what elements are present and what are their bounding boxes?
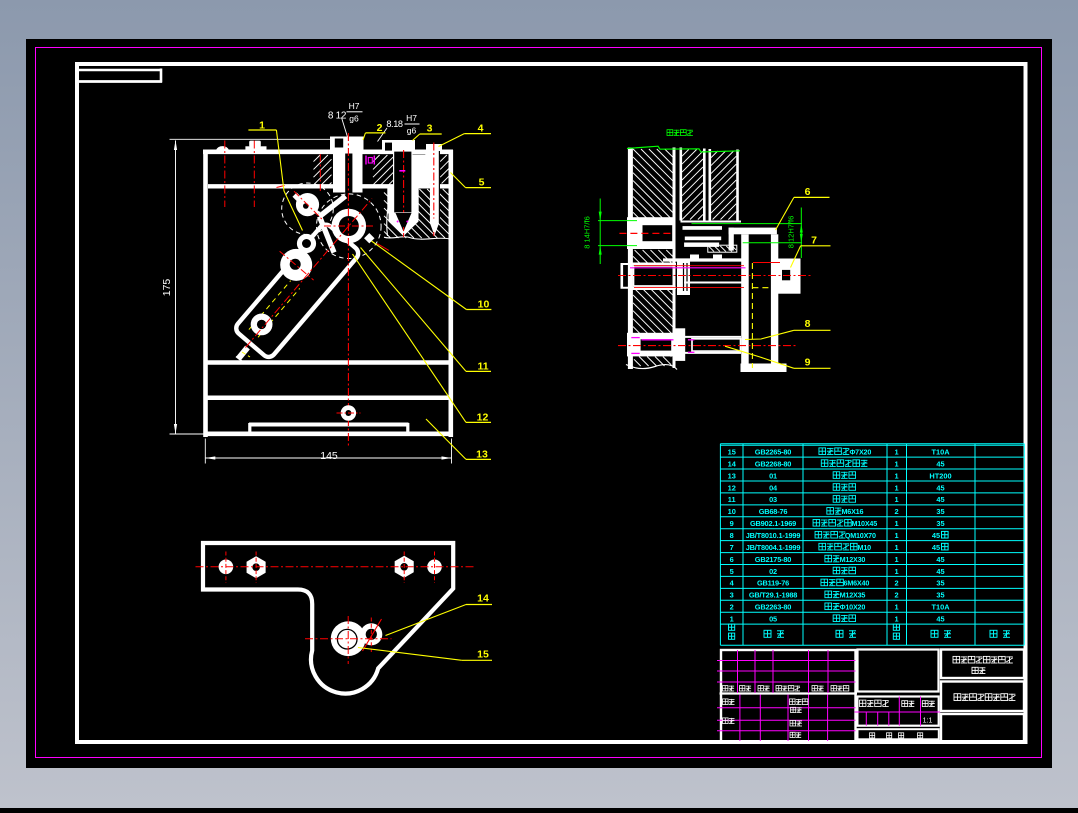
svg-text:2: 2 <box>895 579 899 588</box>
svg-text:GB68-76: GB68-76 <box>759 507 788 516</box>
svg-text:1: 1 <box>895 567 899 576</box>
svg-text:GB902.1-1969: GB902.1-1969 <box>750 519 796 528</box>
svg-text:1: 1 <box>895 603 899 612</box>
svg-text:GB2265-80: GB2265-80 <box>755 448 791 457</box>
svg-text:6M6X40: 6M6X40 <box>844 579 870 588</box>
svg-text:JB/T8004.1-1999: JB/T8004.1-1999 <box>746 543 801 552</box>
svg-text:45: 45 <box>936 555 944 564</box>
svg-text:g6: g6 <box>407 126 417 136</box>
svg-text:10: 10 <box>728 507 736 516</box>
svg-text:7: 7 <box>730 543 734 552</box>
svg-text:8: 8 <box>730 531 734 540</box>
svg-text:1: 1 <box>895 543 899 552</box>
svg-text:11: 11 <box>728 495 736 504</box>
svg-text:GB2175-80: GB2175-80 <box>755 555 791 564</box>
svg-text:1: 1 <box>895 519 899 528</box>
svg-text:8: 8 <box>805 318 811 330</box>
svg-text:H7: H7 <box>406 113 417 123</box>
svg-text:1: 1 <box>895 531 899 540</box>
svg-text:4: 4 <box>478 123 484 135</box>
svg-text:12: 12 <box>728 483 736 492</box>
svg-text:35: 35 <box>936 507 944 516</box>
svg-text:8 12H7/f6: 8 12H7/f6 <box>787 216 796 249</box>
svg-text:6: 6 <box>805 186 811 198</box>
svg-text:13: 13 <box>728 471 736 480</box>
svg-text:145: 145 <box>320 450 338 462</box>
svg-text:2: 2 <box>730 603 734 612</box>
svg-text:1: 1 <box>895 615 899 624</box>
svg-text:45: 45 <box>936 495 944 504</box>
svg-text:GB2263-80: GB2263-80 <box>755 603 791 612</box>
svg-text:35: 35 <box>936 591 944 600</box>
svg-text:6: 6 <box>730 555 734 564</box>
svg-text:GB/T29.1-1988: GB/T29.1-1988 <box>749 591 797 600</box>
svg-text:3: 3 <box>730 591 734 600</box>
svg-text:14: 14 <box>728 459 737 468</box>
svg-text:M12X30: M12X30 <box>840 555 866 564</box>
svg-text:5: 5 <box>479 177 485 189</box>
svg-text:2: 2 <box>377 122 383 134</box>
svg-text:QM10X70: QM10X70 <box>845 531 876 540</box>
svg-text:M12X35: M12X35 <box>840 591 866 600</box>
svg-text:7: 7 <box>811 235 817 247</box>
svg-text:03: 03 <box>769 495 777 504</box>
svg-text:M10X45: M10X45 <box>851 519 877 528</box>
svg-text:45: 45 <box>932 543 940 552</box>
svg-text:175: 175 <box>161 279 173 297</box>
svg-text:M10: M10 <box>858 543 872 552</box>
svg-text:45: 45 <box>936 459 944 468</box>
svg-text:45: 45 <box>936 483 944 492</box>
svg-text:HT200: HT200 <box>929 471 951 480</box>
svg-text:11: 11 <box>477 361 488 373</box>
svg-text:GB119-76: GB119-76 <box>757 579 789 588</box>
svg-text:JB/T8010.1-1999: JB/T8010.1-1999 <box>746 531 801 540</box>
svg-text:1: 1 <box>895 483 899 492</box>
svg-text:3: 3 <box>427 123 433 135</box>
svg-text:H7: H7 <box>349 101 360 111</box>
svg-text:02: 02 <box>769 567 777 576</box>
svg-text:9: 9 <box>730 519 734 528</box>
svg-text:Φ7X20: Φ7X20 <box>849 448 871 457</box>
svg-text:35: 35 <box>936 579 944 588</box>
svg-text:9: 9 <box>805 357 811 369</box>
svg-text:2: 2 <box>895 507 899 516</box>
svg-text:15: 15 <box>477 649 489 661</box>
svg-text:5: 5 <box>730 567 734 576</box>
svg-text:8 12: 8 12 <box>328 111 347 122</box>
svg-text:1: 1 <box>895 555 899 564</box>
svg-text:04: 04 <box>769 483 778 492</box>
svg-text:2: 2 <box>895 591 899 600</box>
svg-text:13: 13 <box>476 449 488 461</box>
svg-text:GB2268-80: GB2268-80 <box>755 459 791 468</box>
svg-text:Φ10X20: Φ10X20 <box>840 603 866 612</box>
svg-text:45: 45 <box>936 615 944 624</box>
svg-text:45: 45 <box>936 567 944 576</box>
svg-text:01: 01 <box>769 471 777 480</box>
svg-text:15: 15 <box>728 448 736 457</box>
svg-text:T10A: T10A <box>931 603 950 612</box>
svg-text:T10A: T10A <box>931 448 950 457</box>
svg-text:05: 05 <box>769 615 777 624</box>
svg-text:8.18: 8.18 <box>386 119 403 129</box>
svg-text:35: 35 <box>936 519 944 528</box>
svg-text:1: 1 <box>895 448 899 457</box>
svg-text:1:1: 1:1 <box>923 717 933 724</box>
svg-text:1: 1 <box>895 459 899 468</box>
svg-text:1: 1 <box>730 615 734 624</box>
svg-text:1: 1 <box>895 471 899 480</box>
svg-text:10: 10 <box>478 299 490 311</box>
svg-text:M6X16: M6X16 <box>842 507 864 516</box>
svg-text:14: 14 <box>477 593 489 605</box>
svg-text:g6: g6 <box>349 114 359 124</box>
svg-text:12: 12 <box>477 412 489 424</box>
svg-text:1: 1 <box>895 495 899 504</box>
svg-text:8 14H7/f6: 8 14H7/f6 <box>583 216 592 249</box>
svg-text:45: 45 <box>932 531 940 540</box>
